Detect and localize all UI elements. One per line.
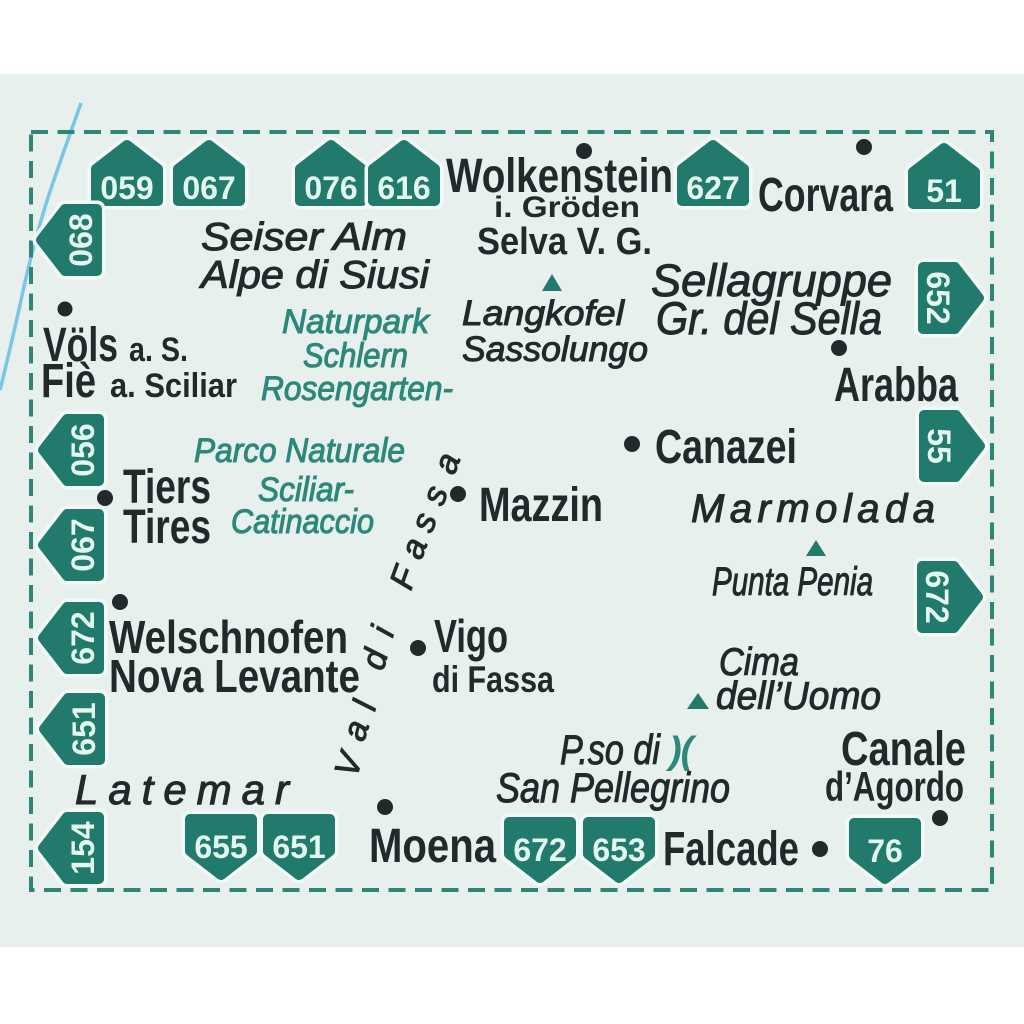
svg-text:Vigo: Vigo <box>434 610 508 662</box>
svg-text:Punta Penia: Punta Penia <box>712 560 873 604</box>
svg-text:Rosengarten-: Rosengarten- <box>261 370 453 408</box>
svg-text:652: 652 <box>920 271 956 324</box>
svg-text:067: 067 <box>65 518 101 571</box>
svg-text:a. S.: a. S. <box>129 331 188 369</box>
svg-text:55: 55 <box>921 428 957 464</box>
svg-text:Nova Levante: Nova Levante <box>109 650 360 702</box>
svg-text:d’Agordo: d’Agordo <box>825 763 964 810</box>
svg-text:Alpe di Siusi: Alpe di Siusi <box>199 254 431 297</box>
svg-text:067: 067 <box>182 170 235 206</box>
svg-text:Catinaccio: Catinaccio <box>231 503 374 541</box>
svg-text:672: 672 <box>65 611 101 664</box>
svg-text:068: 068 <box>63 213 99 266</box>
svg-text:i. Gröden: i. Gröden <box>494 191 640 224</box>
svg-text:Langkofel: Langkofel <box>462 294 625 333</box>
svg-text:Latemar: Latemar <box>75 766 291 813</box>
svg-text:651: 651 <box>272 829 325 865</box>
svg-text:Moena: Moena <box>369 820 496 873</box>
svg-text:Naturpark: Naturpark <box>282 303 431 341</box>
svg-text:Sassolungo: Sassolungo <box>462 330 648 369</box>
svg-text:Tires: Tires <box>123 501 211 554</box>
svg-text:di Fassa: di Fassa <box>432 659 554 700</box>
svg-text:616: 616 <box>377 170 430 206</box>
svg-text:51: 51 <box>926 173 962 209</box>
svg-text:Seiser Alm: Seiser Alm <box>201 216 407 259</box>
svg-text:Selva V. G.: Selva V. G. <box>477 221 652 263</box>
svg-text:Canazei: Canazei <box>655 421 797 474</box>
svg-text:a. Sciliar: a. Sciliar <box>110 367 237 405</box>
svg-text:672: 672 <box>513 832 566 868</box>
svg-text:653: 653 <box>592 832 645 868</box>
svg-text:Falcade: Falcade <box>663 823 799 876</box>
svg-text:627: 627 <box>686 170 739 206</box>
svg-text:672: 672 <box>919 570 955 623</box>
svg-text:154: 154 <box>65 821 101 875</box>
svg-text:San Pellegrino: San Pellegrino <box>496 764 730 811</box>
svg-text:dell’Uomo: dell’Uomo <box>716 675 881 718</box>
svg-text:651: 651 <box>66 702 102 755</box>
svg-text:056: 056 <box>65 423 101 476</box>
svg-text:Arabba: Arabba <box>834 359 958 412</box>
svg-text:076: 076 <box>304 170 357 206</box>
svg-text:059: 059 <box>100 170 153 206</box>
svg-text:Fiè: Fiè <box>41 355 96 408</box>
svg-text:Corvara: Corvara <box>758 169 893 222</box>
svg-text:76: 76 <box>867 833 903 869</box>
svg-text:655: 655 <box>194 829 247 865</box>
svg-text:Parco Naturale: Parco Naturale <box>194 432 405 470</box>
svg-text:Gr. del Sella: Gr. del Sella <box>656 293 882 344</box>
svg-text:Mazzin: Mazzin <box>479 479 603 532</box>
